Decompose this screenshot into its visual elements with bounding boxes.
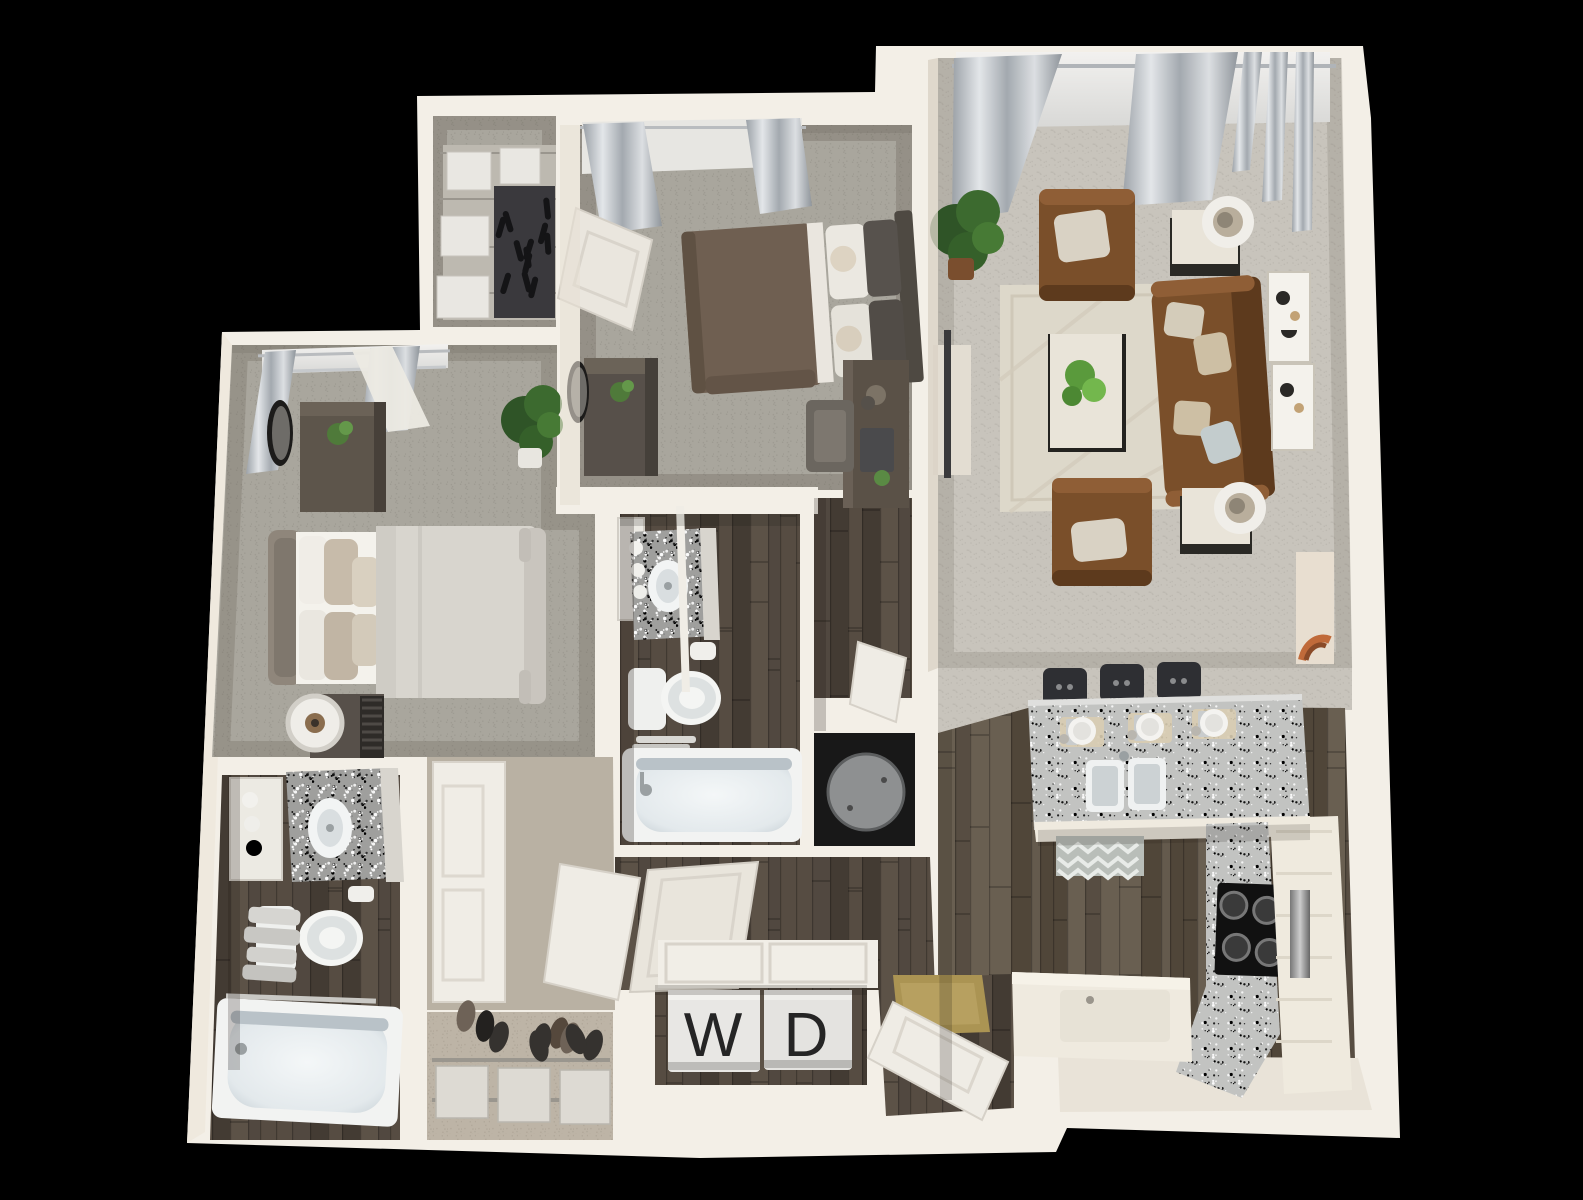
svg-text:D: D	[784, 1001, 829, 1070]
svg-text:W: W	[684, 1001, 743, 1070]
